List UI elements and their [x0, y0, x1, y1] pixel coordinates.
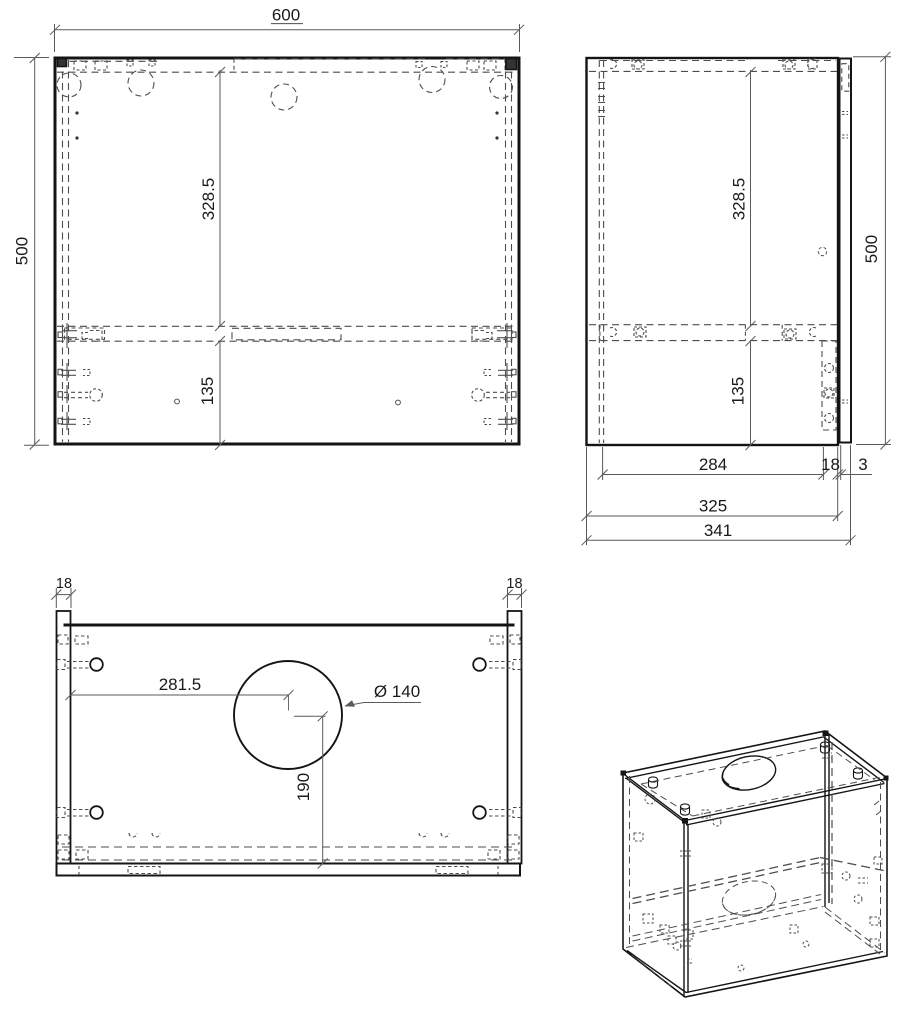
svg-text:500: 500 — [13, 237, 32, 265]
svg-text:600: 600 — [272, 6, 300, 25]
svg-text:3: 3 — [858, 455, 867, 474]
svg-text:Ø 140: Ø 140 — [374, 682, 420, 701]
svg-text:18: 18 — [56, 576, 72, 592]
svg-text:284: 284 — [699, 455, 727, 474]
svg-text:18: 18 — [821, 455, 840, 474]
svg-text:135: 135 — [198, 377, 217, 405]
svg-text:328.5: 328.5 — [730, 178, 749, 221]
svg-text:135: 135 — [729, 377, 748, 405]
svg-text:18: 18 — [506, 576, 522, 592]
svg-text:190: 190 — [294, 773, 313, 801]
svg-text:341: 341 — [704, 521, 732, 540]
svg-text:500: 500 — [862, 235, 881, 263]
svg-text:325: 325 — [699, 497, 727, 516]
svg-text:281.5: 281.5 — [159, 675, 202, 694]
svg-text:328.5: 328.5 — [199, 178, 218, 221]
